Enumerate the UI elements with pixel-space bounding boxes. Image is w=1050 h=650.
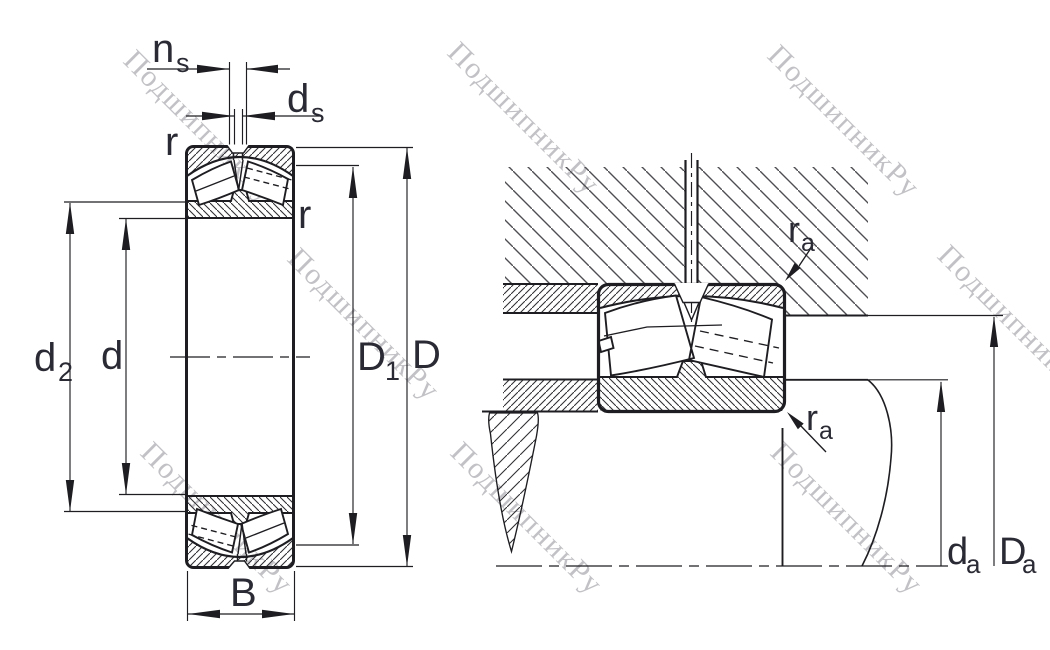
label-B: B: [230, 571, 257, 615]
label-r-top: r: [165, 120, 178, 164]
label-ds: d: [287, 77, 309, 121]
label-D: D: [412, 333, 441, 377]
label-ns-subscript: s: [176, 48, 190, 78]
label-r-side: r: [298, 193, 311, 237]
watermark: ПодшипникРу: [764, 436, 930, 602]
label-ns: n: [152, 27, 174, 71]
watermark: ПодшипникРу: [281, 242, 447, 408]
right-figure-mounted-bearing: r a r a d a D a: [482, 153, 1037, 579]
label-ds-subscript: s: [311, 98, 325, 128]
label-d2: d: [34, 336, 56, 380]
label-D1: D: [357, 335, 386, 379]
drawing-canvas: ПодшипникРу ПодшипникРу ПодшипникРу Подш…: [0, 0, 1050, 650]
label-ra-shaft: r: [806, 397, 818, 438]
label-da: d: [947, 531, 968, 573]
label-da-subscript: a: [966, 549, 981, 579]
label-d: d: [101, 334, 123, 378]
shaft-shoulder-section: [503, 380, 598, 412]
label-ra-housing: r: [788, 209, 800, 250]
label-D1-subscript: 1: [385, 356, 400, 386]
right-extension-and-dimension-lines: [868, 316, 1003, 567]
watermark: ПодшипникРу: [931, 239, 1050, 405]
label-ra-shaft-subscript: a: [819, 417, 833, 445]
housing-shoulder-section: [503, 285, 598, 314]
bearing-drawing: ПодшипникРу ПодшипникРу ПодшипникРу Подш…: [0, 0, 1050, 650]
label-Da-subscript: a: [1022, 549, 1037, 579]
label-d2-subscript: 2: [58, 357, 73, 387]
watermark-layer: ПодшипникРу ПодшипникРу ПодшипникРу Подш…: [117, 36, 1050, 602]
label-ra-housing-subscript: a: [801, 229, 815, 257]
